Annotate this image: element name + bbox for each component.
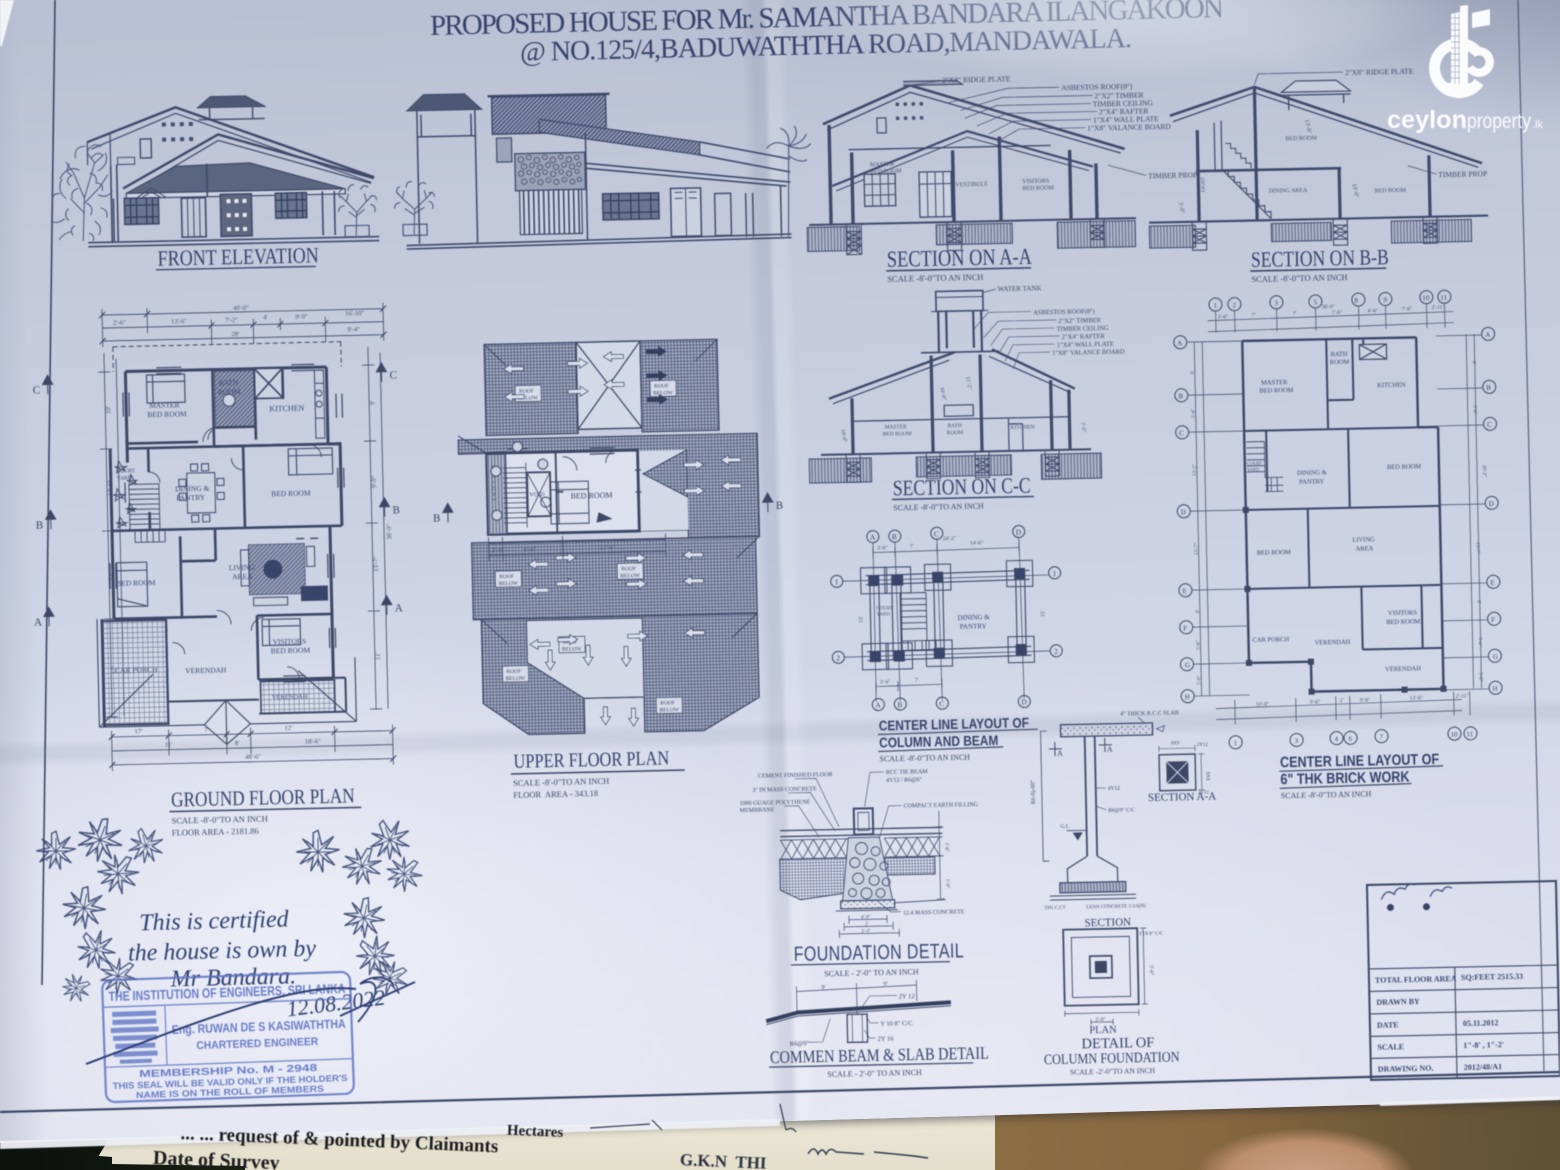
svg-text:SQ:FEET 2515.33: SQ:FEET 2515.33 bbox=[1461, 972, 1523, 982]
svg-text:the house is own by: the house is own by bbox=[128, 936, 317, 967]
svg-text:COMMEN BEAM & SLAB DETAIL: COMMEN BEAM & SLAB DETAIL bbox=[770, 1044, 989, 1067]
svg-text:BED ROOM: BED ROOM bbox=[271, 488, 311, 498]
svg-text:C: C bbox=[934, 529, 939, 538]
svg-text:BELOW: BELOW bbox=[659, 707, 679, 713]
svg-text:10'-0": 10'-0" bbox=[1256, 702, 1269, 708]
svg-text:10'-0": 10'-0" bbox=[938, 387, 946, 401]
svg-text:2': 2' bbox=[1340, 698, 1344, 704]
svg-text:RCC TIE BEAM: RCC TIE BEAM bbox=[886, 769, 928, 776]
svg-text:4'-9": 4'-9" bbox=[861, 915, 871, 920]
svg-text:SCALE -2'-0"TO AN INCH: SCALE -2'-0"TO AN INCH bbox=[1070, 1066, 1156, 1077]
svg-text:2'-3": 2'-3" bbox=[861, 929, 871, 934]
svg-text:2': 2' bbox=[865, 922, 869, 927]
svg-text:G: G bbox=[1493, 653, 1498, 661]
svg-text:C: C bbox=[939, 699, 944, 708]
svg-text:3: 3 bbox=[1295, 737, 1299, 745]
svg-text:G: G bbox=[1185, 661, 1190, 669]
svg-text:3'-6": 3'-6" bbox=[880, 679, 891, 685]
svg-text:UPPER FLOOR PLAN: UPPER FLOOR PLAN bbox=[513, 747, 669, 772]
svg-text:2'-6": 2'-6" bbox=[113, 320, 126, 327]
svg-text:SCALE -8'-0"TO AN INCH: SCALE -8'-0"TO AN INCH bbox=[893, 502, 984, 513]
svg-text:12.4 MASS CONCRETE: 12.4 MASS CONCRETE bbox=[903, 909, 965, 916]
svg-text:FLOOR AREA - 2181.86: FLOOR AREA - 2181.86 bbox=[172, 826, 259, 838]
svg-text:BED ROOM: BED ROOM bbox=[570, 491, 612, 501]
svg-text:8': 8' bbox=[1476, 600, 1481, 604]
svg-text:C: C bbox=[33, 385, 41, 397]
svg-text:BELOW: BELOW bbox=[620, 573, 640, 579]
svg-text:BED ROOM: BED ROOM bbox=[1285, 136, 1317, 143]
svg-text:7': 7' bbox=[1293, 311, 1297, 317]
svg-text:1'-9": 1'-9" bbox=[944, 879, 949, 889]
svg-text:8': 8' bbox=[1191, 370, 1196, 374]
svg-text:10': 10' bbox=[105, 406, 112, 414]
svg-text:7'-6": 7'-6" bbox=[1332, 310, 1343, 316]
svg-text:1"X8" VALANCE BOARD: 1"X8" VALANCE BOARD bbox=[1052, 349, 1125, 358]
svg-text:SCALE -8'-0"TO AN INCH: SCALE -8'-0"TO AN INCH bbox=[1251, 272, 1347, 284]
svg-text:05.11.2012: 05.11.2012 bbox=[1463, 1018, 1499, 1028]
svg-text:5'-6": 5'-6" bbox=[1477, 672, 1482, 682]
svg-text:7': 7' bbox=[204, 727, 209, 734]
svg-text:10'-0": 10'-0" bbox=[839, 429, 847, 443]
svg-text:COURT: COURT bbox=[1247, 461, 1262, 466]
svg-text:14'-6": 14'-6" bbox=[970, 540, 983, 546]
svg-text:FLOOR AREA - 343.18: FLOOR AREA - 343.18 bbox=[513, 788, 598, 800]
svg-text:PANTRY: PANTRY bbox=[176, 493, 206, 503]
svg-text:BED ROOM: BED ROOM bbox=[147, 409, 187, 419]
svg-text:2"X8" RIDGE PLATE: 2"X8" RIDGE PLATE bbox=[1345, 67, 1414, 77]
svg-text:ROOF: ROOF bbox=[506, 669, 521, 675]
svg-text:DATE: DATE bbox=[1377, 1020, 1399, 1029]
svg-text:7': 7' bbox=[1252, 313, 1256, 319]
svg-text:A: A bbox=[875, 700, 881, 709]
svg-text:COLUMN FOUNDATION: COLUMN FOUNDATION bbox=[1044, 1048, 1180, 1067]
svg-text:BELOW: BELOW bbox=[498, 581, 518, 587]
svg-text:4': 4' bbox=[263, 314, 268, 321]
svg-text:VERENDAH: VERENDAH bbox=[185, 665, 227, 675]
svg-text:SECTION: SECTION bbox=[1084, 916, 1131, 929]
svg-text:9'-9": 9'-9" bbox=[371, 475, 378, 488]
svg-text:YARD: YARD bbox=[1247, 467, 1260, 472]
svg-text:BELOW: BELOW bbox=[506, 676, 526, 682]
svg-text:2"X8" RIDGE PLATE: 2"X8" RIDGE PLATE bbox=[942, 74, 1011, 84]
svg-text:13'-2": 13'-2" bbox=[1193, 464, 1198, 476]
svg-text:2'-11": 2'-11" bbox=[1432, 305, 1445, 311]
svg-text:5'-6": 5'-6" bbox=[1472, 405, 1477, 415]
svg-text:ROOM: ROOM bbox=[947, 430, 964, 436]
svg-text:4Y12: 4Y12 bbox=[1108, 786, 1121, 792]
svg-text:BED ROOM: BED ROOM bbox=[1375, 188, 1407, 195]
svg-text:2012/48/A1: 2012/48/A1 bbox=[1464, 1062, 1502, 1072]
svg-text:SCALE: SCALE bbox=[1377, 1042, 1404, 1052]
svg-text:9': 9' bbox=[883, 982, 887, 988]
svg-text:7'-2": 7'-2" bbox=[225, 317, 238, 324]
svg-text:Y 10 8" C/C: Y 10 8" C/C bbox=[880, 1020, 912, 1028]
svg-text:BED ROOM: BED ROOM bbox=[1387, 463, 1421, 471]
svg-text:A: A bbox=[1107, 745, 1113, 754]
svg-text:17': 17' bbox=[134, 728, 142, 735]
svg-text:ceylon: ceylon bbox=[1387, 106, 1467, 134]
svg-text:H: H bbox=[1492, 685, 1497, 693]
svg-text:6'-6": 6'-6" bbox=[524, 546, 537, 553]
svg-text:5'-6": 5'-6" bbox=[1196, 640, 1201, 650]
svg-text:6: 6 bbox=[1349, 735, 1353, 743]
svg-text:COMPACT EARTH FILLING: COMPACT EARTH FILLING bbox=[904, 802, 979, 810]
svg-text:7'-6": 7'-6" bbox=[1402, 306, 1413, 312]
svg-text:4" THICK R.C.C SLAB: 4" THICK R.C.C SLAB bbox=[1120, 710, 1179, 717]
svg-text:YARD: YARD bbox=[876, 612, 890, 617]
svg-text:KITCHEN: KITCHEN bbox=[1011, 424, 1035, 431]
svg-text:DINING &: DINING & bbox=[957, 613, 990, 622]
svg-text:CAR PORCH: CAR PORCH bbox=[115, 665, 158, 675]
svg-text:BED ROOM: BED ROOM bbox=[116, 578, 156, 588]
svg-text:F: F bbox=[1183, 624, 1187, 632]
svg-text:BED ROOM: BED ROOM bbox=[1257, 549, 1291, 557]
svg-text:LIVING: LIVING bbox=[1352, 536, 1375, 543]
svg-text:BED ROOM: BED ROOM bbox=[1259, 387, 1293, 395]
svg-text:ROOF: ROOF bbox=[499, 574, 514, 580]
svg-text:B: B bbox=[392, 504, 400, 516]
svg-text:12': 12' bbox=[284, 725, 292, 732]
svg-text:D: D bbox=[1016, 527, 1022, 536]
svg-text:G.L: G.L bbox=[1060, 824, 1069, 830]
svg-text:C: C bbox=[1179, 429, 1184, 437]
svg-text:9X9: 9X9 bbox=[1171, 741, 1180, 746]
svg-text:13'-7": 13'-7" bbox=[373, 556, 380, 572]
svg-text:3'-0": 3'-0" bbox=[1148, 965, 1154, 976]
svg-text:VISITORS: VISITORS bbox=[1022, 178, 1049, 185]
svg-text:7: 7 bbox=[1379, 733, 1383, 741]
svg-text:A: A bbox=[34, 617, 42, 629]
svg-text:G.K.N THI: G.K.N THI bbox=[680, 1150, 768, 1170]
svg-text:4: 4 bbox=[1335, 735, 1339, 743]
svg-text:R6-0)-00": R6-0)-00" bbox=[1030, 779, 1038, 804]
svg-text:VERENDAH: VERENDAH bbox=[1314, 639, 1350, 647]
svg-text:28': 28' bbox=[231, 331, 239, 338]
svg-text:2'-11": 2'-11" bbox=[1456, 693, 1469, 699]
svg-text:BED ROOM: BED ROOM bbox=[1386, 618, 1420, 626]
svg-text:24'-2": 24'-2" bbox=[943, 536, 956, 542]
svg-text:10: 10 bbox=[1422, 294, 1430, 302]
svg-text:This is certified: This is certified bbox=[139, 906, 290, 936]
svg-text:13'-6": 13'-6" bbox=[1410, 695, 1423, 701]
svg-text:1: 1 bbox=[1053, 569, 1057, 578]
svg-text:R6@9" C/C: R6@9" C/C bbox=[1108, 807, 1135, 814]
svg-text:18'-6": 18'-6" bbox=[305, 738, 321, 745]
svg-text:1: 1 bbox=[835, 577, 839, 586]
svg-text:11'-2": 11'-2" bbox=[964, 376, 972, 390]
svg-text:BED ROOM: BED ROOM bbox=[1022, 185, 1054, 192]
svg-text:1: 1 bbox=[1234, 739, 1238, 747]
svg-text:SECTION A-A: SECTION A-A bbox=[1148, 791, 1216, 804]
svg-text:LEAN CONCRETE 1:3:6(H): LEAN CONCRETE 1:3:6(H) bbox=[1086, 904, 1146, 910]
svg-text:AREA: AREA bbox=[232, 572, 253, 581]
svg-text:DRAWING NO.: DRAWING NO. bbox=[1378, 1064, 1434, 1074]
svg-text:16'-10": 16'-10" bbox=[345, 310, 364, 317]
svg-text:B: B bbox=[433, 513, 441, 525]
svg-text:4Y12 / R6@6": 4Y12 / R6@6" bbox=[886, 777, 923, 784]
svg-text:8: 8 bbox=[1354, 297, 1358, 305]
svg-text:13'-6": 13'-6" bbox=[171, 318, 187, 325]
svg-text:MASTER: MASTER bbox=[884, 424, 907, 430]
svg-text:SCALE -8'-0"TO AN INCH: SCALE -8'-0"TO AN INCH bbox=[513, 776, 609, 788]
svg-text:8': 8' bbox=[1471, 361, 1476, 365]
svg-text:2: 2 bbox=[836, 653, 840, 662]
svg-text:9'-4": 9'-4" bbox=[347, 326, 360, 333]
svg-text:ROOM: ROOM bbox=[218, 387, 241, 397]
svg-text:E: E bbox=[1490, 579, 1494, 587]
svg-text:DINING &: DINING & bbox=[1297, 469, 1327, 477]
svg-text:9: 9 bbox=[1383, 296, 1387, 304]
svg-text:2'-0": 2'-0" bbox=[492, 547, 505, 554]
svg-text:2: 2 bbox=[1232, 301, 1236, 309]
svg-text:1"-8' , 1"-2': 1"-8' , 1"-2' bbox=[1463, 1040, 1504, 1050]
svg-text:SCALE -8'-0"TO AN INCH: SCALE -8'-0"TO AN INCH bbox=[879, 753, 970, 764]
svg-text:DINING AREA: DINING AREA bbox=[1268, 188, 1308, 195]
svg-text:TY8 8" C/C: TY8 8" C/C bbox=[1139, 932, 1164, 938]
svg-text:D: D bbox=[1181, 508, 1186, 516]
svg-text:PLAN: PLAN bbox=[1089, 1025, 1117, 1037]
svg-text:VESTIBULE: VESTIBULE bbox=[955, 182, 988, 189]
svg-text:2: 2 bbox=[1054, 647, 1058, 656]
svg-text:B: B bbox=[36, 519, 44, 531]
svg-text:CENTER LINE LAYOUT OF: CENTER LINE LAYOUT OF bbox=[1280, 750, 1443, 771]
svg-text:C: C bbox=[1487, 421, 1492, 429]
svg-text:VERENDAH: VERENDAH bbox=[1385, 665, 1421, 673]
svg-text:B: B bbox=[776, 500, 784, 512]
svg-text:CHARTERED ENGINEER: CHARTERED ENGINEER bbox=[196, 1036, 318, 1052]
svg-text:MASTER: MASTER bbox=[1261, 379, 1288, 387]
svg-text:B: B bbox=[892, 532, 897, 541]
svg-text:40'-0": 40'-0" bbox=[233, 305, 249, 312]
svg-text:7'-6": 7'-6" bbox=[1079, 422, 1087, 434]
svg-text:7': 7' bbox=[910, 544, 914, 550]
svg-text:5: 5 bbox=[1313, 298, 1317, 306]
svg-text:11': 11' bbox=[375, 652, 382, 660]
svg-text:property: property bbox=[1467, 110, 1531, 133]
svg-text:PANTRY: PANTRY bbox=[1299, 478, 1324, 486]
svg-text:ROOM: ROOM bbox=[1330, 359, 1350, 366]
svg-text:SCALE -8'-0"TO AN INCH: SCALE -8'-0"TO AN INCH bbox=[171, 813, 267, 825]
svg-text:3: 3 bbox=[1274, 299, 1278, 307]
svg-text:B: B bbox=[897, 700, 902, 709]
svg-text:2"X2" TIMBER: 2"X2" TIMBER bbox=[1058, 317, 1101, 325]
svg-text:36'-0": 36'-0" bbox=[1321, 304, 1334, 310]
svg-text:48'-6": 48'-6" bbox=[245, 754, 261, 761]
svg-text:8': 8' bbox=[235, 740, 240, 747]
svg-text:SCALE - 2'-0" TO AN INCH: SCALE - 2'-0" TO AN INCH bbox=[824, 967, 919, 978]
svg-text:A: A bbox=[870, 533, 876, 542]
svg-text:AREA: AREA bbox=[1356, 545, 1374, 552]
svg-text:36'-0": 36'-0" bbox=[386, 523, 393, 539]
svg-text:9': 9' bbox=[369, 400, 376, 405]
svg-text:9': 9' bbox=[821, 985, 825, 991]
svg-text:VISITORS: VISITORS bbox=[1388, 609, 1418, 617]
svg-text:2Y 16: 2Y 16 bbox=[878, 1036, 895, 1043]
svg-text:KITCHEN: KITCHEN bbox=[269, 404, 305, 414]
svg-text:WATER TANK: WATER TANK bbox=[998, 284, 1042, 293]
svg-text:TIMBER CEILING: TIMBER CEILING bbox=[1056, 325, 1109, 333]
svg-text:SCALE - 2'-0" TO AN INCH: SCALE - 2'-0" TO AN INCH bbox=[827, 1068, 922, 1079]
svg-text:B: B bbox=[1178, 392, 1183, 400]
svg-text:ROOF: ROOF bbox=[519, 388, 534, 394]
svg-text:A: A bbox=[1485, 331, 1490, 339]
svg-text:ROOF: ROOF bbox=[660, 700, 675, 706]
svg-text:11': 11' bbox=[165, 742, 173, 749]
svg-text:13': 13' bbox=[858, 616, 864, 623]
svg-text:BATH: BATH bbox=[1330, 351, 1347, 358]
svg-text:1"X4" WALL PLATE: 1"X4" WALL PLATE bbox=[1057, 341, 1114, 349]
svg-text:COURT: COURT bbox=[876, 606, 893, 611]
svg-text:TIMBER PROP: TIMBER PROP bbox=[1148, 170, 1197, 180]
svg-text:CAR PORCH: CAR PORCH bbox=[1252, 636, 1289, 644]
svg-text:20'-2": 20'-2" bbox=[1481, 465, 1486, 477]
svg-text:1"X8" VALANCE BOARD: 1"X8" VALANCE BOARD bbox=[1087, 122, 1172, 133]
svg-text:BATH: BATH bbox=[219, 378, 239, 387]
svg-text:13'-0": 13'-0" bbox=[1303, 119, 1312, 135]
svg-text:3'-0": 3'-0" bbox=[1177, 202, 1185, 215]
svg-text:Eng. RUWAN DE S KASIWATHTHA: Eng. RUWAN DE S KASIWATHTHA bbox=[172, 1017, 346, 1037]
svg-text:ASBESTOS ROOF(8°): ASBESTOS ROOF(8°) bbox=[1033, 308, 1095, 316]
svg-text:SCALE -8'-0"TO AN INCH: SCALE -8'-0"TO AN INCH bbox=[1281, 789, 1372, 800]
svg-text:D: D bbox=[1489, 500, 1494, 508]
svg-text:A: A bbox=[1177, 339, 1182, 347]
svg-text:13'-7": 13'-7" bbox=[1474, 542, 1479, 554]
svg-text:13'-7": 13'-7" bbox=[1194, 543, 1199, 555]
svg-text:2'-0": 2'-0" bbox=[1095, 1017, 1106, 1023]
svg-text:17'-6": 17'-6" bbox=[600, 545, 616, 552]
svg-text:3'-6": 3'-6" bbox=[1218, 314, 1229, 320]
svg-text:COURT: COURT bbox=[117, 468, 136, 474]
svg-text:TH1 C.CT: TH1 C.CT bbox=[1044, 906, 1065, 911]
svg-text:7': 7' bbox=[915, 678, 919, 684]
svg-text:D: D bbox=[1021, 697, 1027, 706]
svg-text:2"X4" RAFTER: 2"X4" RAFTER bbox=[1062, 333, 1106, 341]
svg-text:1: 1 bbox=[1213, 302, 1217, 310]
svg-text:SCALE -8'-0"TO AN INCH: SCALE -8'-0"TO AN INCH bbox=[887, 272, 983, 284]
svg-text:BED ROOM: BED ROOM bbox=[883, 431, 912, 438]
svg-text:TOTAL FLOOR AREA: TOTAL FLOOR AREA bbox=[1375, 974, 1457, 985]
svg-text:A: A bbox=[395, 602, 403, 614]
svg-text:11: 11 bbox=[1466, 730, 1473, 738]
svg-text:11: 11 bbox=[1440, 294, 1447, 302]
svg-text:TIMBER PROP: TIMBER PROP bbox=[1438, 169, 1487, 179]
svg-text:KITCHEN: KITCHEN bbox=[1377, 382, 1406, 390]
svg-text:BELOW: BELOW bbox=[653, 390, 673, 396]
svg-text:3'-6": 3'-6" bbox=[877, 545, 888, 551]
svg-text:5'-6": 5'-6" bbox=[1197, 675, 1202, 685]
svg-text:A: A bbox=[1057, 749, 1063, 758]
svg-text:9'-9": 9'-9" bbox=[295, 313, 308, 320]
svg-text:Date of Survey: Date of Survey bbox=[153, 1147, 280, 1170]
svg-text:2Y12: 2Y12 bbox=[1197, 743, 1209, 748]
svg-text:C: C bbox=[389, 369, 397, 381]
svg-text:ROOF: ROOF bbox=[654, 383, 669, 389]
svg-text:8': 8' bbox=[1196, 609, 1201, 613]
svg-text:2Y 12: 2Y 12 bbox=[899, 993, 915, 1000]
svg-text:10: 10 bbox=[1450, 731, 1458, 739]
svg-text:15': 15' bbox=[1040, 610, 1046, 617]
svg-text:MEMBRANE: MEMBRANE bbox=[740, 807, 775, 814]
svg-text:H: H bbox=[1185, 693, 1190, 701]
svg-text:.lk: .lk bbox=[1532, 119, 1544, 131]
svg-text:9'-6": 9'-6" bbox=[1310, 699, 1321, 705]
svg-text:BELOW: BELOW bbox=[562, 646, 582, 652]
svg-text:BED ROOM: BED ROOM bbox=[271, 645, 311, 655]
svg-text:5'-6": 5'-6" bbox=[1476, 637, 1481, 647]
svg-text:9'-6": 9'-6" bbox=[1360, 697, 1371, 703]
svg-text:R6@9": R6@9" bbox=[790, 1040, 810, 1047]
svg-text:Hectares: Hectares bbox=[507, 1123, 564, 1141]
svg-text:VERENDAH: VERENDAH bbox=[272, 694, 308, 702]
svg-text:F: F bbox=[1491, 616, 1495, 624]
svg-text:5'-6": 5'-6" bbox=[1192, 408, 1197, 418]
svg-text:B: B bbox=[1486, 384, 1491, 392]
svg-text:BATH: BATH bbox=[947, 423, 962, 429]
svg-text:9X9: 9X9 bbox=[1204, 772, 1209, 781]
svg-text:1000 GUAGE POLYTHENE: 1000 GUAGE POLYTHENE bbox=[740, 800, 811, 807]
svg-text:BED ROOM: BED ROOM bbox=[870, 169, 902, 176]
svg-text:DRAWN BY: DRAWN BY bbox=[1376, 997, 1420, 1007]
svg-text:MASTER: MASTER bbox=[870, 162, 894, 169]
svg-text:4'-6": 4'-6" bbox=[1368, 308, 1379, 314]
svg-text:1'-6": 1'-6" bbox=[943, 843, 948, 853]
svg-text:ROOF: ROOF bbox=[621, 566, 636, 572]
svg-text:CEMENT FINISHED FLOOR: CEMENT FINISHED FLOOR bbox=[758, 772, 833, 780]
svg-text:10'-0": 10'-0" bbox=[1350, 183, 1359, 199]
svg-text:CENTER LINE LAYOUT OF: CENTER LINE LAYOUT OF bbox=[879, 714, 1030, 733]
svg-text:PANTRY: PANTRY bbox=[960, 622, 987, 631]
svg-text:E: E bbox=[1182, 587, 1186, 595]
svg-text:YARD: YARD bbox=[117, 475, 132, 481]
svg-text:LIGHT: LIGHT bbox=[1201, 177, 1206, 192]
